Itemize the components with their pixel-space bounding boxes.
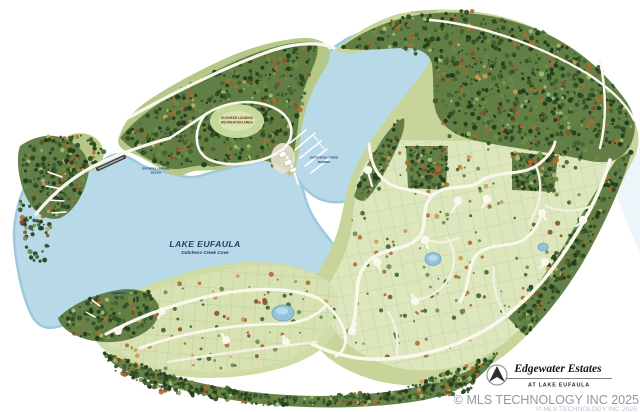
north-arrow-icon — [487, 365, 507, 385]
lake-cove-label: Dutchess Creek Cove — [181, 250, 229, 255]
beach-label-2: BEACH — [151, 171, 161, 175]
marina-label-2: MARINA — [318, 160, 331, 164]
watermark: © MLS TECHNOLOGY INC 2025 © MLS TECHNOLO… — [454, 393, 639, 412]
lake-name-label: LAKE EUFAULA — [169, 239, 240, 249]
swim-label-2: BEACH — [114, 295, 124, 299]
recreation-label-2: RECREATION AREA — [221, 121, 253, 125]
map-subtitle: AT LAKE EUFAULA — [528, 383, 590, 389]
title-block: Edgewater Estates AT LAKE EUFAULA — [487, 363, 612, 389]
marina-label-1: DUTCHESS CREEK — [310, 156, 339, 160]
map-title: Edgewater Estates — [513, 363, 602, 375]
watermark-text: © MLS TECHNOLOGY INC 2025 — [454, 393, 639, 407]
recreation-label-1: DUCHESS LANDING — [221, 116, 253, 120]
plat-map-image: LAKE EUFAULA Dutchess Creek Cove DUTCHES… — [0, 0, 640, 412]
map-canvas: LAKE EUFAULA Dutchess Creek Cove DUTCHES… — [0, 0, 640, 412]
